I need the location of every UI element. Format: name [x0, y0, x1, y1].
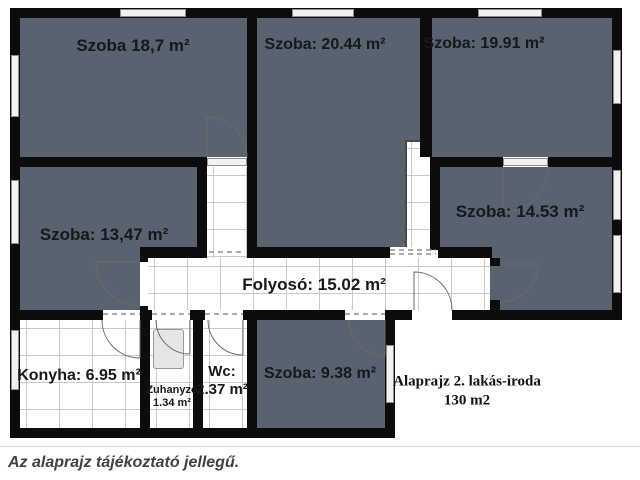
wall: [190, 310, 205, 320]
window: [11, 55, 19, 117]
closet-partition-left: [405, 140, 407, 247]
wall: [430, 157, 440, 250]
room-label-szoba-13-47: Szoba: 13,47 m²: [40, 225, 169, 245]
wall: [247, 320, 257, 428]
wall: [10, 310, 103, 320]
disclaimer-caption: Az alaprajz tájékoztató jellegű.: [8, 454, 239, 472]
wall: [10, 157, 207, 167]
wall: [140, 310, 152, 320]
window: [120, 9, 186, 17]
wall: [420, 8, 432, 157]
wall: [197, 157, 207, 257]
wall: [243, 310, 345, 320]
zuhanyzo-area: 1.34 m²: [146, 397, 197, 410]
window: [613, 235, 621, 293]
room-label-folyoso: Folyosó: 15.02 m²: [242, 275, 386, 295]
separator-line: [0, 446, 640, 447]
plan-annotation: Alaprajz 2. lakás-iroda 130 m2: [393, 372, 541, 410]
window: [11, 180, 19, 244]
door-sill: [207, 158, 247, 166]
wall: [430, 157, 503, 167]
room-label-konyha: Konyha: 6.95 m²: [17, 367, 141, 385]
shower-tray: [153, 329, 184, 369]
wall: [10, 428, 395, 438]
plan-annotation-title: Alaprajz 2. lakás-iroda: [393, 372, 541, 391]
room-label-szoba-9-38: Szoba: 9.38 m²: [264, 365, 376, 383]
window: [613, 50, 621, 104]
door-sill: [503, 158, 548, 166]
room-szoba-20-44-lower: [257, 140, 405, 247]
wall: [490, 300, 500, 320]
room-szoba-13-47-lower: [20, 247, 140, 310]
room-label-szoba-14-53: Szoba: 14.53 m²: [456, 202, 585, 222]
plan-annotation-size: 130 m2: [393, 391, 541, 410]
floor-plan: Szoba 18,7 m² Szoba: 20.44 m² Szoba: 19.…: [0, 0, 640, 480]
passage-area: [207, 167, 247, 258]
wall: [140, 320, 150, 428]
window: [613, 170, 621, 220]
window: [292, 9, 354, 17]
wall: [247, 247, 390, 258]
window: [478, 9, 542, 17]
wall: [452, 310, 622, 320]
wall: [490, 258, 500, 266]
room-label-zuhanyzo: Zuhanyzó 1.34 m²: [146, 384, 197, 410]
zuhanyzo-name: Zuhanyzó: [146, 384, 197, 397]
wall: [438, 247, 492, 258]
room-label-szoba-18-7: Szoba 18,7 m²: [76, 36, 189, 56]
room-label-szoba-19-91: Szoba: 19.91 m²: [424, 35, 545, 53]
wc-name: Wc:: [196, 363, 248, 381]
wall: [140, 247, 148, 262]
door-opening-dashes: [390, 250, 436, 254]
wall: [140, 247, 207, 258]
room-label-wc: Wc: 2.37 m²: [196, 363, 248, 399]
wall: [247, 8, 257, 257]
wall: [548, 157, 622, 167]
wc-area: 2.37 m²: [196, 381, 248, 399]
room-label-szoba-20-44: Szoba: 20.44 m²: [265, 36, 386, 54]
